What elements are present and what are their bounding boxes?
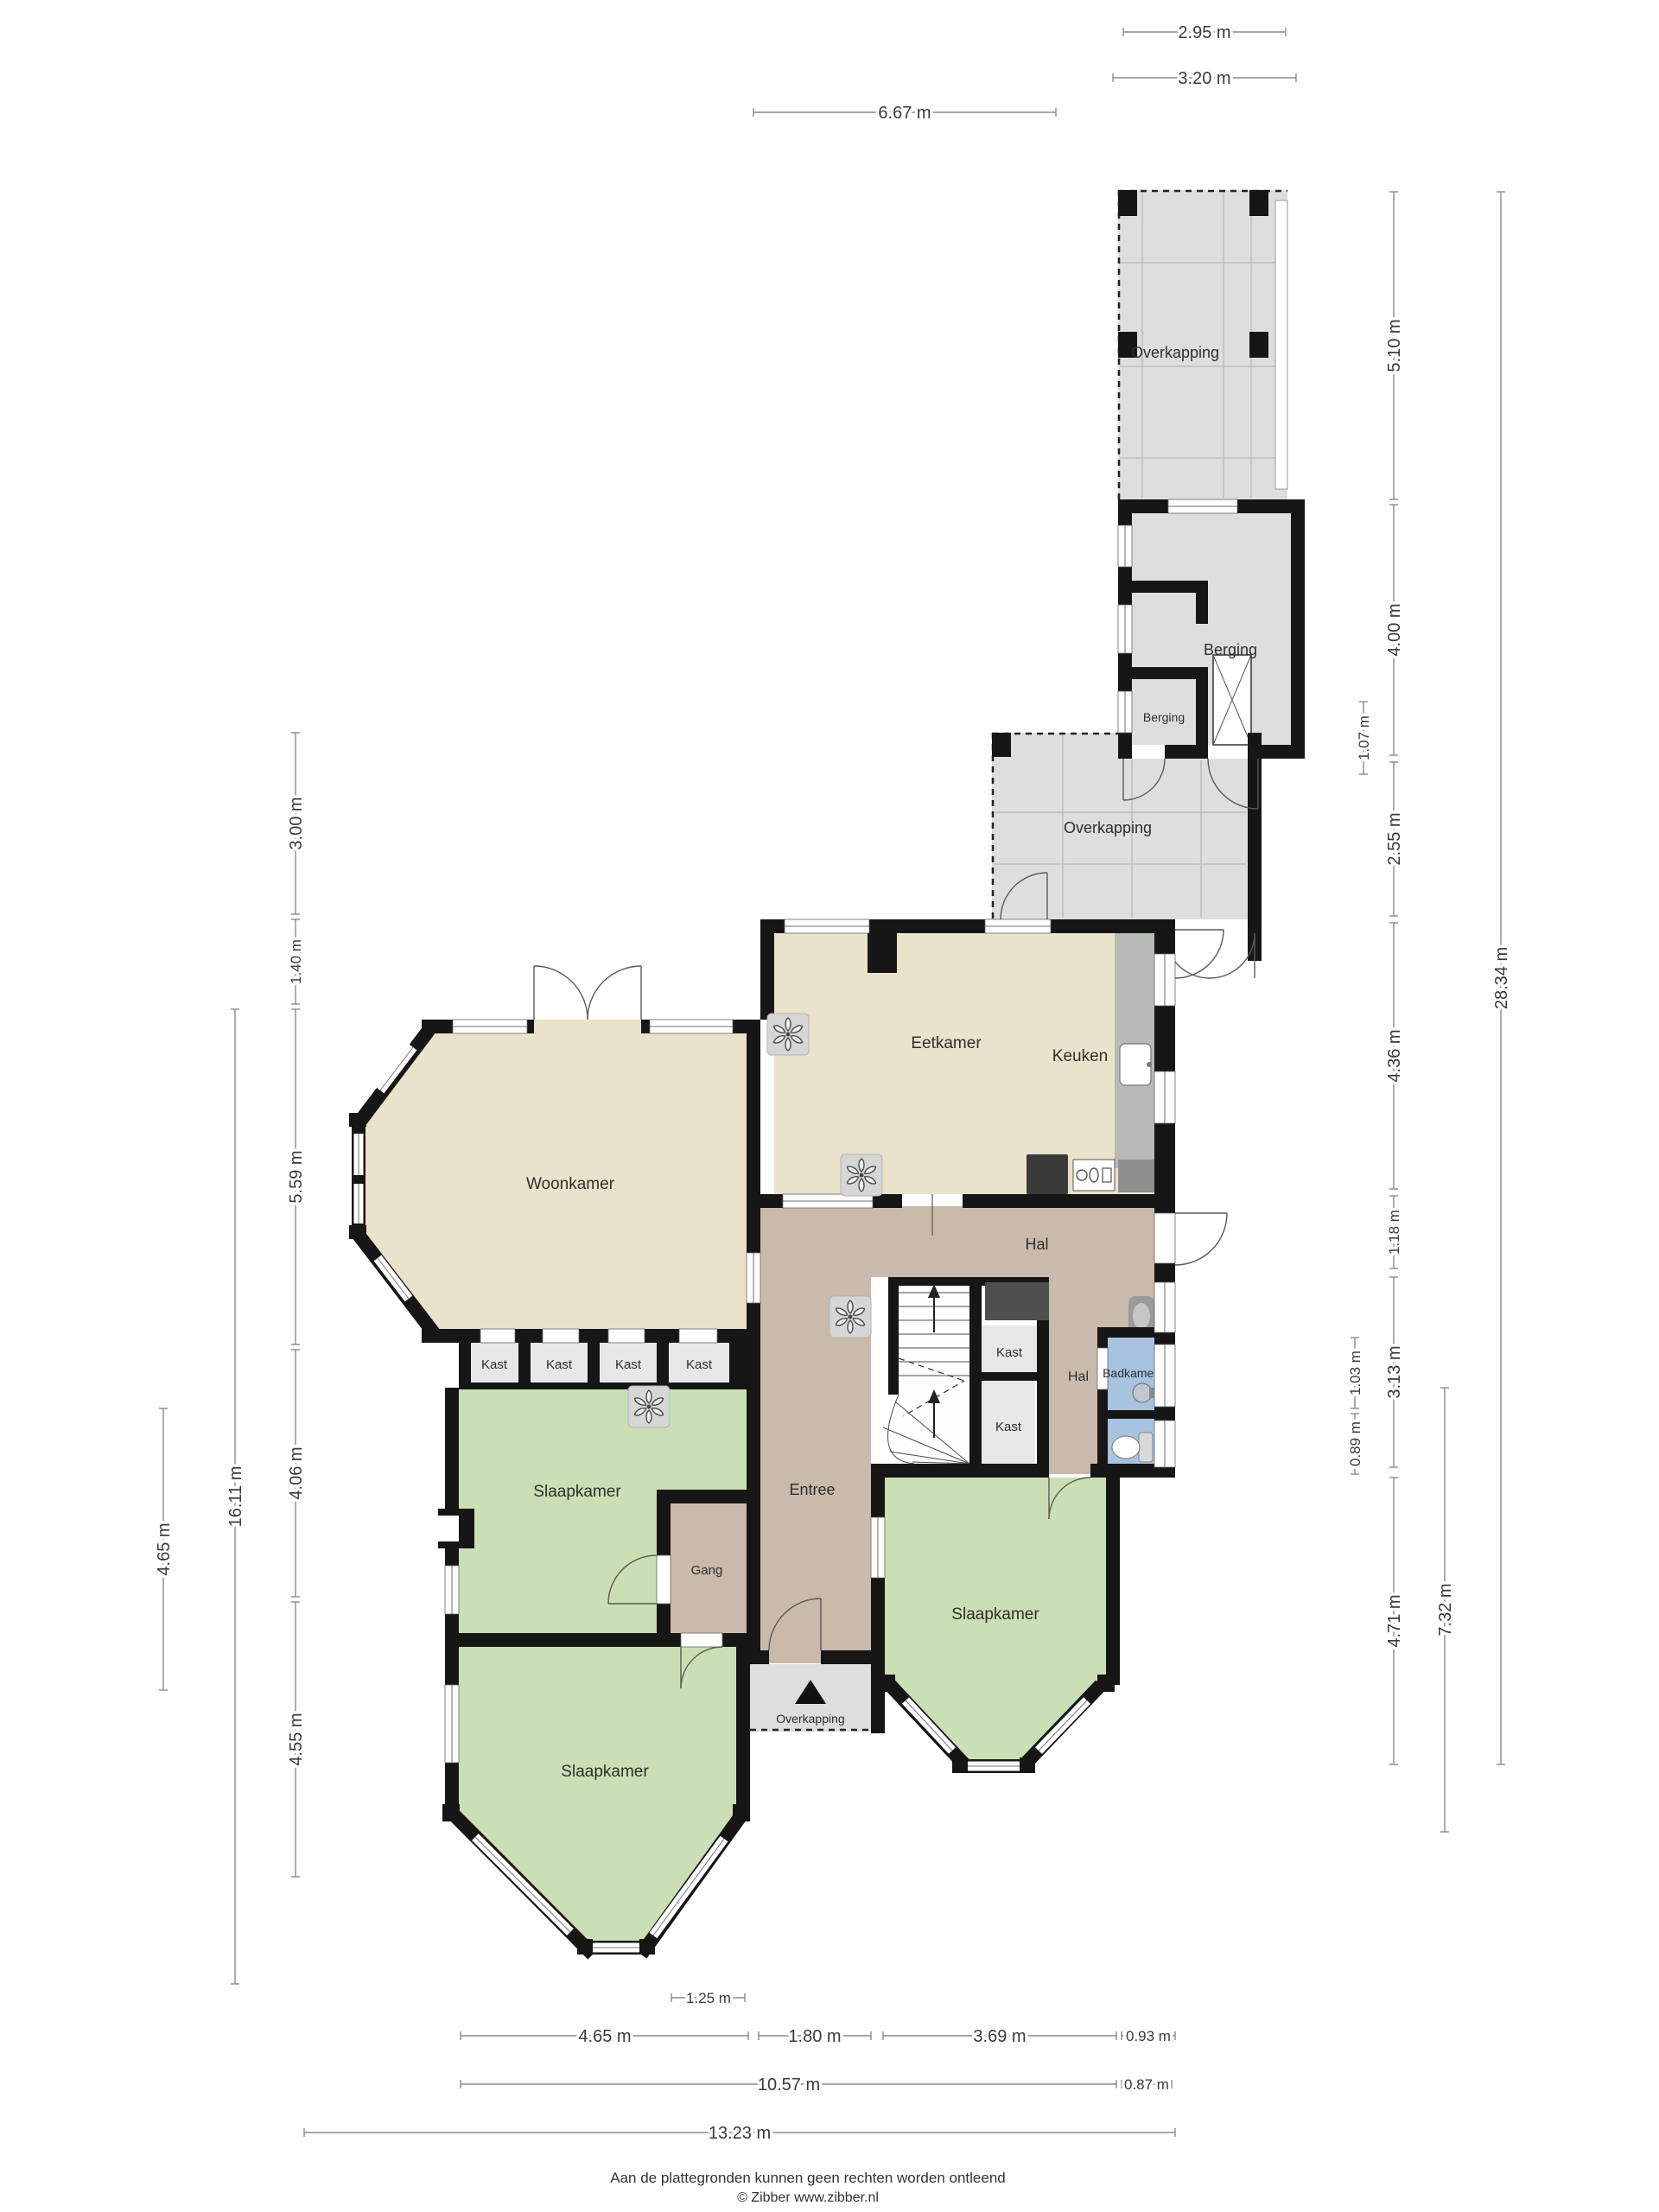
- dim-left-300: 3.00 m: [287, 733, 306, 914]
- dim-left-406: 4.06 m: [287, 1350, 306, 1597]
- kast3-label: Kast: [615, 1357, 642, 1372]
- slaapkamer-midden-label: Slaapkamer: [533, 1483, 621, 1501]
- dim-right-2834: 28.34 m: [1492, 192, 1511, 1764]
- dim-right-103: 1.03 m: [1347, 1338, 1363, 1408]
- room-slaapkamer-onder: [459, 1647, 750, 1951]
- woonkamer-label: Woonkamer: [526, 1175, 615, 1193]
- dim-label: 4.65 m: [155, 1522, 174, 1575]
- dim-right-510: 5.10 m: [1385, 192, 1404, 499]
- dim-label: 7.32 m: [1436, 1583, 1455, 1636]
- dim-label: 4.00 m: [1385, 603, 1404, 656]
- dim-label: 1.07 m: [1356, 715, 1372, 760]
- hal-klein-label: Hal: [1068, 1370, 1089, 1384]
- dim-label: 2.95 m: [1178, 23, 1230, 42]
- dim-label: 2.55 m: [1385, 812, 1404, 865]
- fan-icon: [767, 1014, 809, 1055]
- kast6-label: Kast: [995, 1420, 1022, 1434]
- badkamer-label: Badkamer: [1103, 1366, 1158, 1380]
- dim-label: 1.03 m: [1347, 1351, 1363, 1395]
- dim-right-089: 0.89 m: [1347, 1414, 1363, 1474]
- dim-label: 5.59 m: [287, 1150, 306, 1203]
- floorplan-page: Overkapping Berging Berging: [0, 0, 1659, 2212]
- dim-left-465: 4.65 m: [155, 1408, 174, 1690]
- dim-label: 6.67 m: [878, 104, 931, 123]
- dim-label: 1.80 m: [788, 2027, 841, 2046]
- berging-large-label: Berging: [1204, 641, 1257, 658]
- dim-label: 1.18 m: [1386, 1210, 1402, 1255]
- dim-bottom-465: 4.65 m: [461, 2027, 748, 2046]
- dim-top-295: 2.95 m: [1123, 23, 1286, 42]
- wardrobe-dark: [985, 1282, 1049, 1320]
- berging-structure: Berging Berging: [1118, 499, 1305, 759]
- dim-label: 4.55 m: [287, 1713, 306, 1765]
- dim-label: 0.87 m: [1124, 2076, 1169, 2093]
- berging-small-label: Berging: [1143, 710, 1185, 724]
- kast5-label: Kast: [996, 1345, 1023, 1360]
- dim-label: 1.40 m: [288, 939, 304, 984]
- hal-boven-label: Hal: [1025, 1236, 1048, 1253]
- kast4-label: Kast: [686, 1357, 713, 1372]
- kast1-label: Kast: [481, 1357, 508, 1372]
- kast2-label: Kast: [546, 1357, 573, 1372]
- fan-icon: [628, 1386, 670, 1427]
- dim-label: 1.25 m: [686, 1990, 731, 2006]
- dim-label: 13.23 m: [709, 2124, 771, 2143]
- counter-end: [1118, 1160, 1154, 1192]
- dim-label: 0.93 m: [1126, 2028, 1171, 2044]
- entree-label: Entree: [789, 1481, 835, 1498]
- dim-right-107: 1.07 m: [1356, 702, 1372, 774]
- fan-icon: [829, 1296, 871, 1338]
- dim-right-436: 4.36 m: [1385, 923, 1404, 1189]
- dim-label: 5.10 m: [1385, 319, 1404, 372]
- dim-label: 4.06 m: [287, 1446, 306, 1499]
- dim-right-471: 4.71 m: [1385, 1478, 1404, 1764]
- dim-left-559: 5.59 m: [287, 1009, 306, 1344]
- dim-left-1611: 16.11 m: [226, 1009, 245, 1984]
- floorplan-canvas: Overkapping Berging Berging: [0, 0, 1659, 2212]
- dim-label: 28.34 m: [1492, 947, 1511, 1009]
- keuken-label: Keuken: [1052, 1047, 1108, 1065]
- dim-bottom-180: 1.80 m: [759, 2027, 871, 2046]
- dim-bottom-125: 1.25 m: [671, 1990, 745, 2006]
- overkapping-top-structure: Overkapping: [1118, 190, 1287, 499]
- dim-right-255: 2.55 m: [1385, 762, 1404, 916]
- dim-label: 3.69 m: [973, 2027, 1026, 2046]
- dim-right-118: 1.18 m: [1386, 1196, 1402, 1268]
- dim-label: 16.11 m: [226, 1466, 245, 1528]
- room-hal-boven: [760, 1206, 1154, 1277]
- dim-label: 4.65 m: [578, 2027, 631, 2046]
- boiler-icon: [1073, 1160, 1115, 1191]
- gang-label: Gang: [691, 1563, 723, 1578]
- overkapping-top-label: Overkapping: [1131, 344, 1219, 361]
- dim-right-732: 7.32 m: [1436, 1388, 1455, 1832]
- dim-top-320: 3.20 m: [1113, 69, 1296, 88]
- dim-bottom-093: 0.93 m: [1122, 2028, 1175, 2044]
- dim-left-140: 1.40 m: [288, 919, 304, 1004]
- dim-top-667: 6.67 m: [753, 104, 1056, 123]
- dim-right-400: 4.00 m: [1385, 505, 1404, 755]
- dim-label: 3.13 m: [1385, 1345, 1404, 1398]
- dim-bottom-1057: 10.57 m: [461, 2075, 1116, 2094]
- dim-label: 3.20 m: [1178, 69, 1230, 88]
- footer-disclaimer: Aan de plattegronden kunnen geen rechten…: [610, 2170, 1005, 2186]
- footer-copyright: © Zibber www.zibber.nl: [737, 2190, 879, 2205]
- dim-bottom-087: 0.87 m: [1122, 2076, 1172, 2093]
- dim-label: 0.89 m: [1347, 1421, 1363, 1466]
- dim-bottom-1323: 13.23 m: [304, 2124, 1175, 2143]
- dim-label: 3.00 m: [287, 797, 306, 849]
- eetkamer-label: Eetkamer: [911, 1034, 982, 1052]
- fan-icon: [841, 1154, 882, 1196]
- dim-label: 4.36 m: [1385, 1029, 1404, 1082]
- dim-label: 4.71 m: [1385, 1594, 1404, 1647]
- overkapping-entree-label: Overkapping: [776, 1712, 844, 1726]
- dim-left-455: 4.55 m: [287, 1602, 306, 1877]
- stove-icon: [1027, 1154, 1068, 1194]
- dim-bottom-369: 3.69 m: [883, 2027, 1116, 2046]
- dim-right-313: 3.13 m: [1385, 1277, 1404, 1467]
- dim-label: 10.57 m: [758, 2075, 820, 2094]
- overkapping-mid-label: Overkapping: [1064, 819, 1152, 836]
- slaapkamer-onder-label: Slaapkamer: [561, 1763, 649, 1781]
- slaapkamer-rechts-label: Slaapkamer: [951, 1605, 1039, 1624]
